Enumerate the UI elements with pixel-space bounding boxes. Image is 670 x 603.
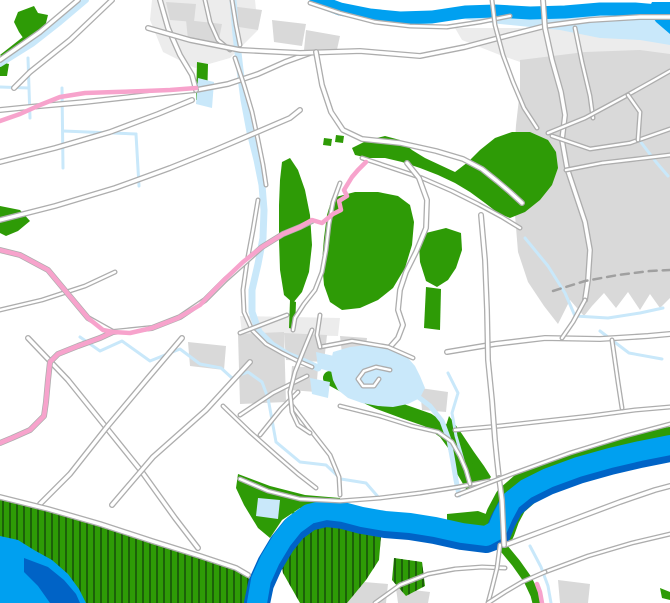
- park-east-stem: [424, 287, 441, 330]
- field-ditch: [62, 88, 63, 168]
- town-block: [166, 2, 196, 22]
- green-dot: [335, 135, 344, 143]
- pond-southwest: [256, 498, 280, 519]
- map-canvas[interactable]: [0, 0, 670, 603]
- green-dot: [323, 138, 332, 146]
- map-viewport: [0, 0, 670, 603]
- town-block: [272, 20, 306, 46]
- south-block: [558, 580, 590, 603]
- pond-town: [196, 78, 214, 108]
